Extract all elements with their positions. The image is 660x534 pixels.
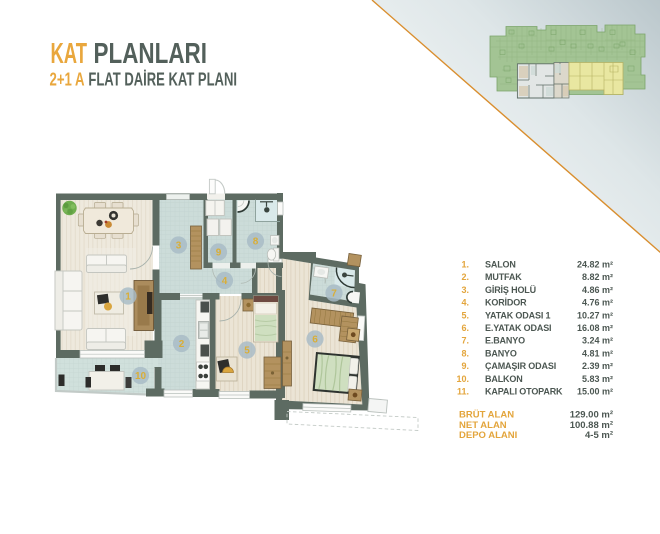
- svg-text:E.YATAK ODASI: E.YATAK ODASI: [485, 323, 551, 333]
- svg-text:ÇAMAŞIR ODASI: ÇAMAŞIR ODASI: [485, 361, 556, 371]
- svg-text:KAT: KAT: [51, 38, 88, 70]
- svg-text:24.82 m²: 24.82 m²: [577, 260, 613, 270]
- svg-text:10: 10: [135, 371, 147, 382]
- svg-text:6.: 6.: [461, 323, 469, 333]
- svg-text:7.: 7.: [461, 336, 469, 346]
- svg-text:11.: 11.: [457, 387, 469, 397]
- svg-text:5.83 m²: 5.83 m²: [582, 374, 613, 384]
- svg-text:MUTFAK: MUTFAK: [485, 272, 522, 282]
- svg-text:3: 3: [176, 241, 182, 252]
- svg-text:BALKON: BALKON: [485, 374, 523, 384]
- svg-text:5: 5: [244, 346, 250, 357]
- svg-text:8: 8: [253, 237, 259, 248]
- svg-text:7: 7: [331, 289, 337, 300]
- svg-text:3.24 m²: 3.24 m²: [582, 336, 613, 346]
- svg-text:8.: 8.: [461, 348, 469, 358]
- svg-text:2.39 m²: 2.39 m²: [582, 361, 613, 371]
- svg-text:1.: 1.: [461, 260, 469, 270]
- svg-text:15.00 m²: 15.00 m²: [577, 387, 613, 397]
- svg-text:4.86 m²: 4.86 m²: [582, 285, 613, 295]
- svg-text:4.76 m²: 4.76 m²: [582, 298, 613, 308]
- svg-text:10.: 10.: [456, 374, 469, 384]
- svg-text:10.27 m²: 10.27 m²: [577, 310, 613, 320]
- svg-text:2+1 A: 2+1 A: [50, 70, 85, 90]
- svg-text:8.82 m²: 8.82 m²: [582, 272, 613, 282]
- svg-text:9: 9: [216, 248, 222, 259]
- svg-text:PLANLARI: PLANLARI: [94, 38, 208, 70]
- svg-text:2: 2: [179, 339, 185, 350]
- svg-text:YATAK ODASI 1: YATAK ODASI 1: [485, 310, 551, 320]
- svg-text:KORİDOR: KORİDOR: [485, 298, 527, 308]
- svg-text:DEPO ALANI: DEPO ALANI: [459, 430, 517, 441]
- svg-text:2.: 2.: [461, 272, 469, 282]
- svg-text:3.: 3.: [461, 285, 469, 295]
- svg-text:16.08 m²: 16.08 m²: [577, 323, 613, 333]
- svg-text:E.BANYO: E.BANYO: [485, 336, 525, 346]
- svg-text:4.81 m²: 4.81 m²: [582, 348, 613, 358]
- svg-text:FLAT DAİRE KAT PLANI: FLAT DAİRE KAT PLANI: [88, 70, 237, 90]
- svg-text:1: 1: [125, 292, 131, 303]
- svg-text:BANYO: BANYO: [485, 348, 517, 358]
- svg-text:SALON: SALON: [485, 260, 516, 270]
- svg-text:6: 6: [312, 335, 318, 346]
- svg-text:KAPALI OTOPARK: KAPALI OTOPARK: [485, 387, 563, 397]
- svg-text:4-5 m²: 4-5 m²: [585, 430, 613, 441]
- svg-text:4.: 4.: [461, 298, 469, 308]
- svg-text:4: 4: [222, 276, 228, 287]
- svg-text:9.: 9.: [461, 361, 469, 371]
- svg-text:GİRİŞ HOLÜ: GİRİŞ HOLÜ: [485, 285, 536, 295]
- svg-text:5.: 5.: [461, 310, 469, 320]
